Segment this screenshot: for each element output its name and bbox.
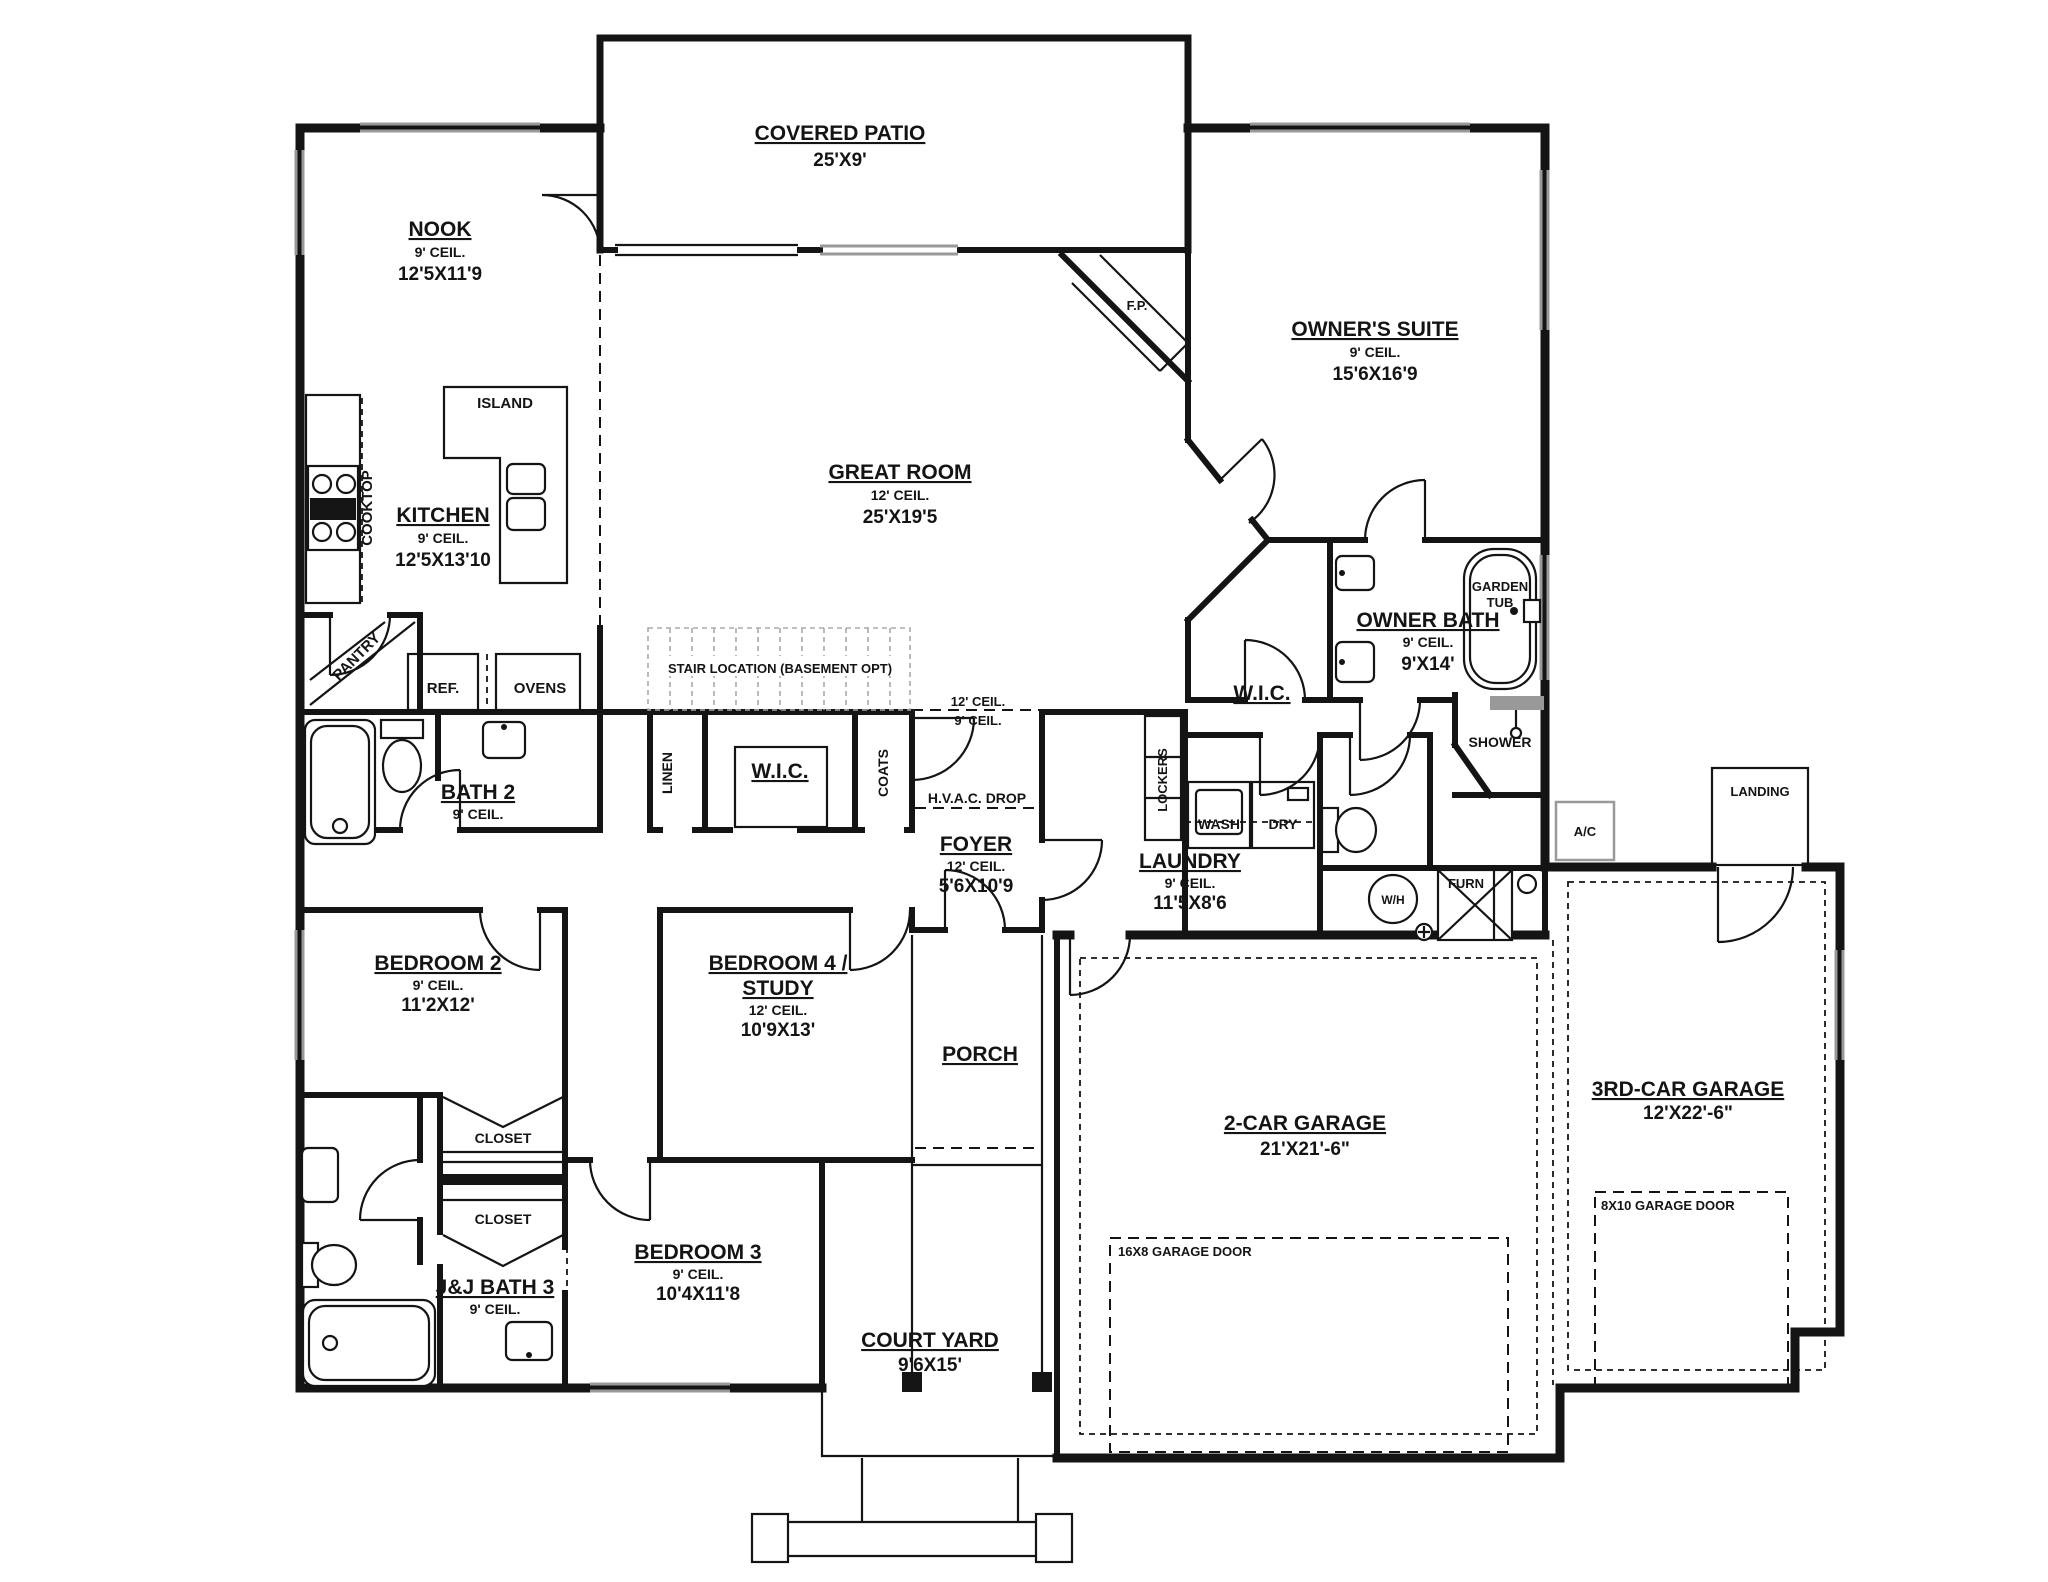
kitchen-dims: 12'5X13'10 (395, 550, 491, 571)
bath2-ceil: 9' CEIL. (453, 806, 504, 822)
linen-label: LINEN (659, 752, 675, 794)
bedroom2-ceil: 9' CEIL. (413, 977, 464, 993)
bath2-label: BATH 2 (441, 781, 515, 804)
jj-bath3-label: J&J BATH 3 (436, 1276, 555, 1299)
bedroom4-label-2: STUDY (742, 977, 813, 1000)
laundry-ceil: 9' CEIL. (1165, 875, 1216, 891)
doors (330, 195, 1793, 1220)
nook-ceil: 9' CEIL. (415, 244, 466, 260)
nook-dims: 12'5X11'9 (398, 264, 482, 285)
great-room-ceil: 12' CEIL. (871, 487, 930, 503)
garden-tub-label-1: GARDEN (1472, 579, 1528, 594)
laundry-label: LAUNDRY (1139, 850, 1241, 873)
closet1-label: CLOSET (475, 1130, 532, 1146)
bedroom3-dims: 10'4X11'8 (656, 1284, 740, 1305)
jj-bath3-ceil: 9' CEIL. (470, 1301, 521, 1317)
garage2-dims: 21'X21'-6" (1260, 1139, 1350, 1160)
dry-label: DRY (1268, 816, 1298, 832)
court-yard-label: COURT YARD (861, 1329, 999, 1352)
bedroom3-ceil: 9' CEIL. (673, 1266, 724, 1282)
coats-label: COATS (875, 749, 891, 797)
garden-tub-label-2: TUB (1487, 595, 1514, 610)
landing-label: LANDING (1730, 784, 1789, 799)
fireplace-fixture (1062, 255, 1188, 381)
ceil-break-lower: 9' CEIL. (954, 713, 1001, 728)
garage2-label: 2-CAR GARAGE (1224, 1112, 1386, 1135)
owners-suite-dims: 15'6X16'9 (1332, 364, 1417, 385)
foyer-ceil: 12' CEIL. (947, 858, 1006, 874)
bedroom3-label: BEDROOM 3 (634, 1241, 761, 1264)
wic-hall-label: W.I.C. (751, 760, 808, 783)
great-room-label: GREAT ROOM (828, 461, 971, 484)
ovens-label: OVENS (514, 680, 567, 697)
wic-owner-label: W.I.C. (1233, 682, 1290, 705)
owners-suite-ceil: 9' CEIL. (1350, 344, 1401, 360)
ref-label: REF. (427, 680, 460, 697)
closet2-label: CLOSET (475, 1211, 532, 1227)
kitchen-label: KITCHEN (396, 504, 489, 527)
hvac-label: H.V.A.C. DROP (928, 790, 1026, 806)
wash-label: WASH (1198, 816, 1240, 832)
porch-label: PORCH (942, 1043, 1018, 1066)
floor-plan-canvas: COVERED PATIO 25'X9' NOOK 9' CEIL. 12'5X… (0, 0, 2048, 1582)
stair-label: STAIR LOCATION (BASEMENT OPT) (668, 661, 892, 676)
cooktop-label: COOKTOP (359, 470, 376, 546)
covered-patio-label: COVERED PATIO (755, 122, 926, 145)
pantry-label: PANTRY (330, 630, 384, 684)
powder-toilet-fixture (1322, 808, 1376, 852)
fireplace-label: F.P. (1127, 298, 1148, 313)
garage3-dims: 12'X22'-6" (1643, 1103, 1733, 1124)
nook-label: NOOK (409, 218, 472, 241)
kitchen-ceil: 9' CEIL. (418, 530, 469, 546)
garage-door-8x10-label: 8X10 GARAGE DOOR (1601, 1198, 1735, 1213)
owner-bath-dims: 9'X14' (1401, 654, 1454, 675)
owner-bath-ceil: 9' CEIL. (1403, 634, 1454, 650)
foyer-label: FOYER (940, 833, 1012, 856)
ac-label: A/C (1574, 824, 1597, 839)
garage3-label: 3RD-CAR GARAGE (1592, 1078, 1785, 1101)
owners-suite-label: OWNER'S SUITE (1291, 318, 1458, 341)
bedroom2-label: BEDROOM 2 (374, 952, 501, 975)
court-yard-dims: 9'6X15' (898, 1355, 962, 1376)
furnace-label: FURN (1448, 876, 1484, 891)
bedroom2-dims: 11'2X12' (401, 995, 475, 1016)
garage-door-16x8-label: 16X8 GARAGE DOOR (1118, 1244, 1252, 1259)
covered-patio-dims: 25'X9' (813, 150, 866, 171)
water-heater-label: W/H (1381, 893, 1404, 907)
bedroom4-label-1: BEDROOM 4 / (709, 952, 848, 975)
foyer-dims: 5'6X10'9 (939, 876, 1014, 897)
island-label: ISLAND (477, 395, 533, 412)
bedroom4-ceil: 12' CEIL. (749, 1002, 808, 1018)
ceil-break-upper: 12' CEIL. (951, 694, 1005, 709)
hall-closet-fixtures (735, 747, 827, 827)
exterior-walls (300, 38, 1840, 1458)
floor-plan: COVERED PATIO 25'X9' NOOK 9' CEIL. 12'5X… (0, 0, 2048, 1582)
owner-bath-label: OWNER BATH (1356, 609, 1499, 632)
bedroom4-dims: 10'9X13' (741, 1020, 816, 1041)
laundry-dims: 11'5X8'6 (1153, 893, 1227, 914)
great-room-dims: 25'X19'5 (863, 507, 938, 528)
lockers-label: LOCKERS (1155, 748, 1170, 812)
shower-label: SHOWER (1469, 734, 1532, 750)
